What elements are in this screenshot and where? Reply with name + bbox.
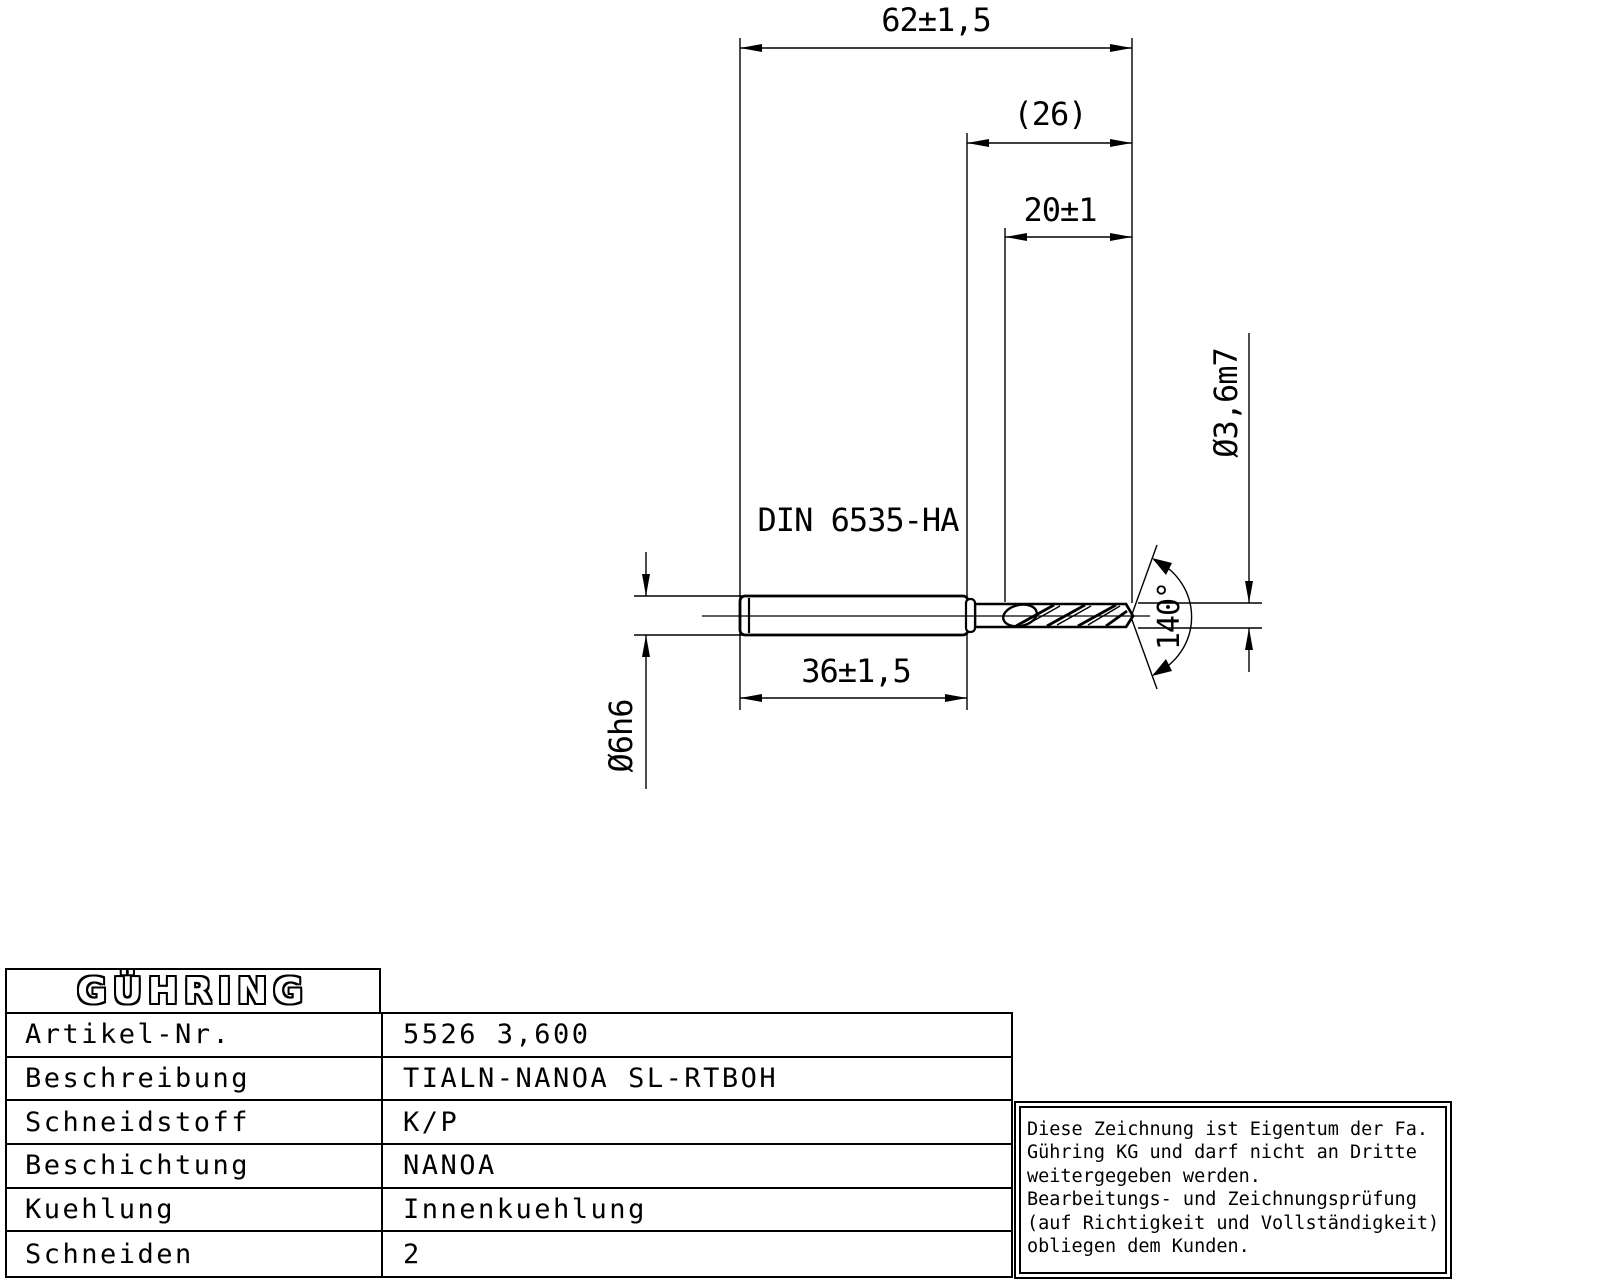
spec-label-kuehlung: Kuehlung	[7, 1189, 383, 1231]
manufacturer-logo: GÜHRING	[77, 971, 309, 1012]
disclaimer-line: Diese Zeichnung ist Eigentum der Fa.	[1027, 1118, 1445, 1141]
spec-value-beschreibung: TIALN-NANOA SL-RTBOH	[383, 1058, 1011, 1100]
disclaimer-line: Bearbeitungs- und Zeichnungsprüfung	[1027, 1188, 1445, 1211]
drill-outline	[702, 596, 1150, 635]
dim-flute-length: 20±1	[1023, 194, 1096, 226]
spec-value-beschichtung: NANOA	[383, 1145, 1011, 1187]
table-row: Kuehlung Innenkuehlung	[7, 1189, 1011, 1233]
spec-label-beschreibung: Beschreibung	[7, 1058, 383, 1100]
dim-point-angle: 140°	[1155, 582, 1185, 650]
shank-norm-label: DIN 6535-HA	[758, 504, 959, 536]
spec-value-artikel-nr: 5526 3,600	[383, 1014, 1011, 1056]
table-row: Schneidstoff K/P	[7, 1101, 1011, 1145]
table-row: Artikel-Nr. 5526 3,600	[7, 1014, 1011, 1058]
extension-lines	[634, 38, 1262, 789]
disclaimer-line: weitergegeben werden.	[1027, 1165, 1445, 1188]
spec-table: Artikel-Nr. 5526 3,600 Beschreibung TIAL…	[5, 1012, 1013, 1278]
manufacturer-logo-cell: GÜHRING	[5, 968, 381, 1014]
disclaimer-line: obliegen dem Kunden.	[1027, 1235, 1445, 1258]
dim-drill-diameter: Ø3,6m7	[1210, 348, 1242, 458]
spec-label-schneiden: Schneiden	[7, 1232, 383, 1276]
dim-shank-length: 36±1,5	[801, 655, 911, 687]
table-row: Beschreibung TIALN-NANOA SL-RTBOH	[7, 1058, 1011, 1102]
spec-label-beschichtung: Beschichtung	[7, 1145, 383, 1187]
disclaimer-line: Gühring KG und darf nicht an Dritte	[1027, 1141, 1445, 1164]
dim-ref-length: (26)	[1013, 98, 1086, 130]
disclaimer-box-inner: Diese Zeichnung ist Eigentum der Fa. Güh…	[1019, 1106, 1447, 1274]
spec-label-artikel-nr: Artikel-Nr.	[7, 1014, 383, 1056]
technical-drawing-sheet: 62±1,5 (26) 20±1 Ø3,6m7 140° 36±1,5 Ø6h6…	[0, 0, 1600, 1280]
dim-overall-length: 62±1,5	[881, 4, 991, 36]
table-row: Beschichtung NANOA	[7, 1145, 1011, 1189]
spec-label-schneidstoff: Schneidstoff	[7, 1101, 383, 1143]
disclaimer-line: (auf Richtigkeit und Vollständigkeit)	[1027, 1212, 1445, 1235]
spec-value-kuehlung: Innenkuehlung	[383, 1189, 1011, 1231]
dim-shank-diameter: Ø6h6	[605, 699, 637, 772]
spec-value-schneidstoff: K/P	[383, 1101, 1011, 1143]
disclaimer-box: Diese Zeichnung ist Eigentum der Fa. Güh…	[1014, 1101, 1452, 1279]
spec-value-schneiden: 2	[383, 1232, 1011, 1276]
table-row: Schneiden 2	[7, 1232, 1011, 1276]
